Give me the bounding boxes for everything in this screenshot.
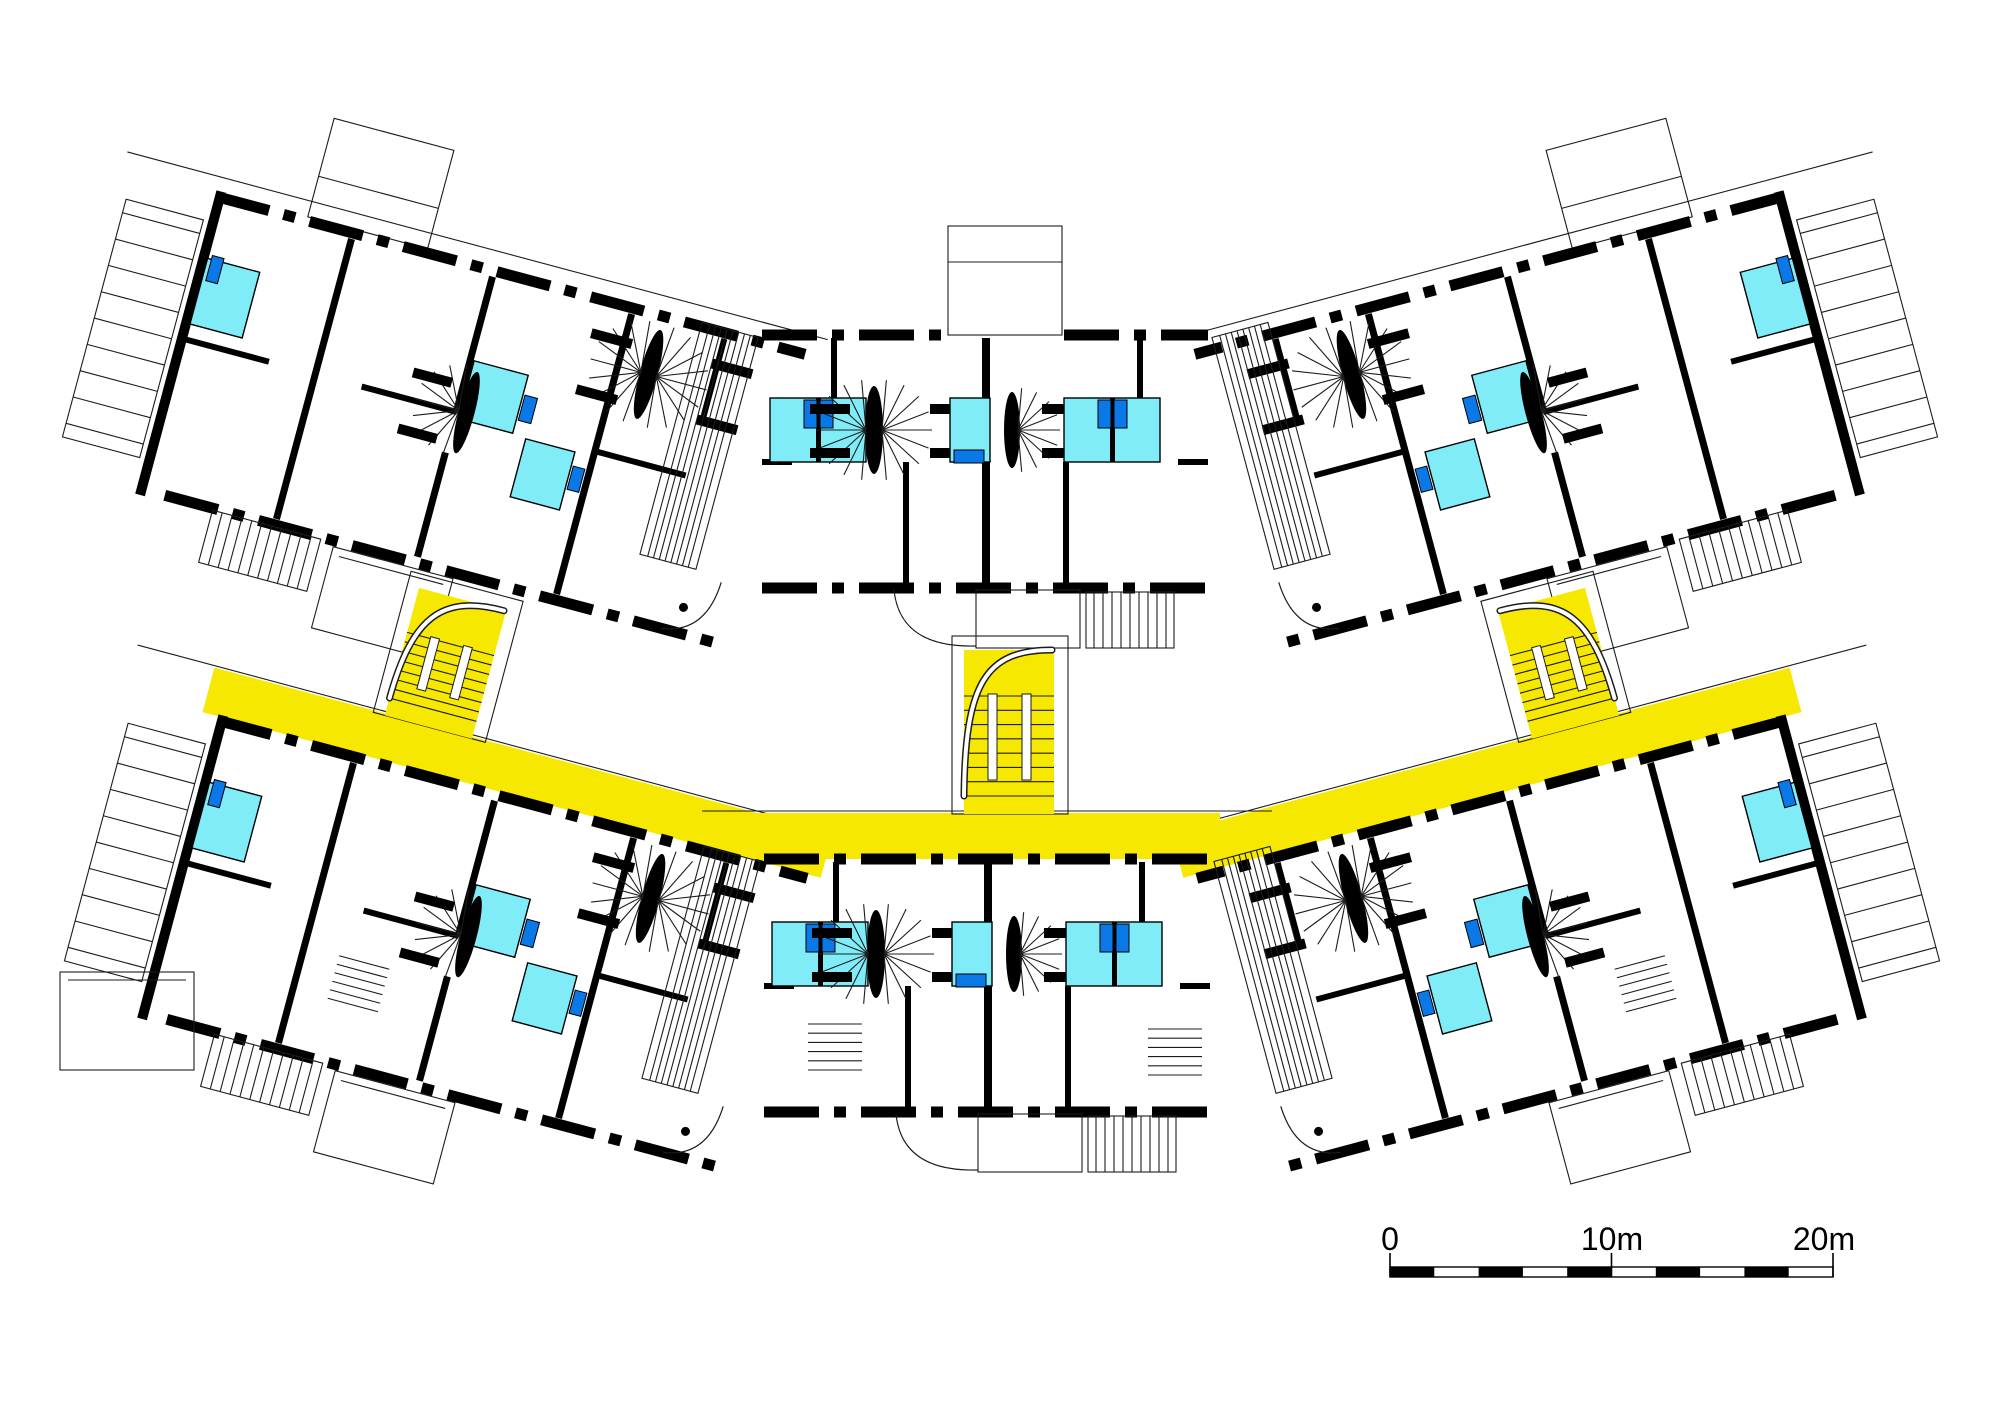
junction-stair	[1220, 325, 1323, 568]
terrace-divider-line	[319, 176, 439, 208]
stair-tread	[1852, 921, 1929, 942]
wet-room-highlight	[1425, 439, 1490, 510]
junction-stair	[648, 325, 751, 568]
partition-wall	[1276, 339, 1298, 422]
scale-bar: 0 10m 20m	[1381, 1221, 1855, 1277]
fixture-highlight	[1100, 924, 1113, 952]
stair-landing-bar	[810, 404, 850, 414]
scale-label-end: 20m	[1793, 1221, 1855, 1257]
partition-wall	[364, 911, 459, 936]
stair-tread	[1768, 515, 1782, 567]
stair-tread	[1778, 513, 1792, 565]
partition-wall	[362, 387, 457, 412]
stair-tread	[1770, 1039, 1784, 1091]
scale-label-start: 0	[1381, 1221, 1399, 1257]
stair-core	[630, 852, 671, 946]
partition-wall	[1314, 451, 1405, 475]
stair-tread	[1721, 1053, 1735, 1105]
stair-core	[1004, 392, 1020, 468]
stair-landing-bar	[1562, 424, 1603, 444]
stair-tread	[1823, 816, 1900, 837]
exterior-wall-top	[216, 196, 805, 354]
stair-core	[628, 328, 669, 422]
stair-tread	[1809, 763, 1886, 784]
stair-tread	[1838, 868, 1915, 889]
partition-wall	[1546, 911, 1641, 936]
wet-room-highlight	[1427, 963, 1492, 1034]
lower-floor-plan	[23, 508, 1982, 1266]
stair-tread	[250, 1047, 264, 1099]
stair-tread	[238, 521, 252, 573]
stair-tread	[673, 855, 735, 1087]
party-wall	[1650, 763, 1725, 1043]
stair-tread	[1740, 1047, 1754, 1099]
stair-tread	[665, 329, 727, 561]
stair-tread	[260, 1050, 274, 1102]
stair-tread	[228, 518, 242, 570]
stair-tread	[101, 292, 178, 313]
column	[1313, 1126, 1324, 1137]
stair-tread	[230, 1042, 244, 1094]
stair-tread	[1836, 344, 1913, 365]
stair-tread	[1730, 1050, 1744, 1102]
party-wall	[1557, 977, 1585, 1081]
stair-tread	[1750, 1045, 1764, 1097]
stair-landing-bar	[810, 448, 850, 458]
stair-tread	[679, 856, 741, 1088]
stair-tread	[1843, 371, 1920, 392]
stair-tread	[89, 868, 166, 889]
stair-tread	[1814, 265, 1891, 286]
stair-landing-bar	[412, 368, 453, 388]
wet-room-highlight	[512, 963, 577, 1034]
entrance-bay-outline	[976, 590, 1080, 648]
upper-floor-plan	[21, 69, 1980, 738]
scale-label-mid: 10m	[1581, 1221, 1643, 1257]
scale-bar-segment	[1479, 1267, 1523, 1277]
stair-landing-bar	[812, 928, 852, 938]
party-wall	[276, 239, 351, 519]
stair-landing-bar	[812, 972, 852, 982]
stair-pavilion	[373, 571, 523, 742]
gallery-highlight	[1171, 668, 1801, 878]
ground-wing-right	[1112, 508, 1981, 1266]
stair-tread	[671, 331, 733, 563]
stair-landing-bar	[1564, 948, 1605, 968]
winder-stair	[1020, 912, 1062, 996]
party-wall	[278, 763, 353, 1043]
stair-tread	[1719, 529, 1733, 581]
junction-outline	[1214, 846, 1332, 1093]
winder-tread	[882, 430, 919, 464]
stair-tread	[103, 816, 180, 837]
balcony-outline	[948, 226, 1062, 335]
stair-tread	[653, 326, 715, 558]
party-wall	[417, 453, 445, 557]
stair-tread	[208, 513, 222, 565]
curved-bay-wall	[896, 1114, 978, 1170]
stair-pavilion	[1481, 571, 1631, 742]
stair-tread	[82, 895, 159, 916]
external-stair-outline	[199, 510, 321, 591]
stair-tread	[240, 1045, 254, 1097]
stair-pavilion	[952, 636, 1068, 814]
exterior-wall-top	[1197, 720, 1786, 878]
partition-wall	[186, 339, 269, 361]
column	[680, 1126, 691, 1137]
internal-stair	[1148, 1029, 1202, 1075]
stair-tread	[80, 371, 157, 392]
stair-tread	[117, 763, 194, 784]
gallery-highlight	[203, 668, 833, 878]
stair-tread	[1709, 531, 1723, 583]
stair-core	[1331, 328, 1372, 422]
stair-tread	[287, 534, 301, 586]
external-stair-outline	[1679, 510, 1801, 591]
stair-tread	[220, 1039, 234, 1091]
stair-tread	[289, 1058, 303, 1110]
partition-wall	[1731, 339, 1814, 361]
floor-plan-page: 0 10m 20m	[0, 0, 2000, 1414]
party-wall	[419, 977, 447, 1081]
junction-stair	[650, 849, 753, 1092]
scale-bar-segment	[1390, 1267, 1434, 1277]
stair-tread	[269, 1053, 283, 1105]
stair-tread	[1728, 526, 1742, 578]
internal-stair	[1615, 956, 1677, 1012]
winder-tread	[1300, 867, 1346, 911]
party-wall	[1648, 239, 1723, 519]
winder-tread	[882, 396, 919, 430]
centre-block	[640, 226, 1330, 648]
stair-tread	[1845, 895, 1922, 916]
stair-landing-bar	[414, 892, 455, 912]
stair-tread	[1711, 1055, 1725, 1107]
floor-plan-drawing: 0 10m 20m	[0, 0, 2000, 1414]
winder-tread	[884, 954, 921, 988]
stair-tread	[94, 318, 171, 339]
winder-stair	[1018, 388, 1060, 472]
partition-wall	[1278, 863, 1300, 946]
partition-wall	[1316, 975, 1407, 999]
stair-core	[1333, 852, 1374, 946]
terrace-divider-line	[1562, 176, 1682, 208]
stair-tread	[108, 265, 185, 286]
junction-stair-right	[1212, 322, 1330, 569]
exterior-wall-top	[1195, 196, 1784, 354]
stair-landing-bar	[397, 424, 438, 444]
winder-tread	[884, 920, 921, 954]
external-stair-outline	[1681, 1034, 1803, 1115]
stair-tread	[1807, 239, 1884, 260]
stair-tread	[110, 789, 187, 810]
railing-post	[1022, 694, 1031, 780]
stair-tread	[1758, 518, 1772, 570]
fixture-highlight	[1098, 400, 1111, 428]
centre-block	[642, 636, 1332, 1172]
external-stair-outline	[201, 1034, 323, 1115]
partition-wall	[188, 863, 271, 885]
gallery-highlight	[750, 813, 1220, 859]
internal-stair	[328, 956, 390, 1012]
stair-landing-bar	[1547, 368, 1588, 388]
stair-core	[1006, 916, 1022, 992]
column	[1311, 602, 1322, 613]
external-stair	[1096, 1116, 1168, 1172]
junction-stair-right	[1214, 846, 1332, 1093]
stair-tread	[1738, 523, 1752, 575]
partition-wall	[1544, 387, 1639, 412]
stair-tread	[1821, 292, 1898, 313]
stair-tread	[1748, 521, 1762, 573]
winder-tread	[1298, 343, 1344, 387]
stair-tread	[75, 921, 152, 942]
external-stair	[1094, 592, 1166, 648]
stair-tread	[96, 842, 173, 863]
internal-stair	[808, 1024, 862, 1070]
fixture-highlight	[956, 974, 986, 987]
stair-tread	[258, 526, 272, 578]
stair-landing-bar	[399, 948, 440, 968]
stair-tread	[267, 529, 281, 581]
column	[678, 602, 689, 613]
stair-tread	[1830, 842, 1907, 863]
stair-tread	[1699, 534, 1713, 586]
stair-tread	[1701, 1058, 1715, 1110]
fixture-highlight	[1116, 924, 1129, 952]
exterior-wall-top	[218, 720, 807, 878]
stair-core	[867, 910, 885, 998]
entrance-bay-outline	[978, 1114, 1082, 1172]
stair-tread	[677, 332, 739, 564]
stair-landing-bar	[1549, 892, 1590, 912]
partition-wall	[1733, 863, 1816, 885]
stair-tread	[1828, 318, 1905, 339]
stair-tread	[1850, 397, 1927, 418]
stair-tread	[73, 397, 150, 418]
scale-bar-segment	[1656, 1267, 1700, 1277]
stair-tread	[87, 344, 164, 365]
stair-tread	[115, 239, 192, 260]
gallery-stair-highlight	[964, 650, 1054, 814]
stair-tread	[248, 523, 262, 575]
stair-tread	[218, 515, 232, 567]
winder-stair	[816, 380, 866, 480]
scale-bar-segment	[1567, 1267, 1611, 1277]
fixture-highlight	[1114, 400, 1127, 428]
junction-stair	[1222, 849, 1325, 1092]
stair-tread	[279, 1055, 293, 1107]
scale-bar-segment	[1744, 1267, 1788, 1277]
fixture-highlight	[954, 450, 984, 463]
stair-core	[865, 386, 883, 474]
curved-bay-wall	[894, 590, 976, 646]
ground-wing-left	[23, 508, 892, 1266]
wet-room-highlight	[510, 439, 575, 510]
winder-stair	[818, 904, 868, 1004]
stair-tread	[655, 850, 717, 1082]
stair-tread	[667, 853, 729, 1085]
party-wall	[1555, 453, 1583, 557]
railing-post	[988, 694, 997, 780]
junction-outline	[1212, 322, 1330, 569]
stair-tread	[277, 531, 291, 583]
stair-tread	[1816, 789, 1893, 810]
stair-tread	[1760, 1042, 1774, 1094]
